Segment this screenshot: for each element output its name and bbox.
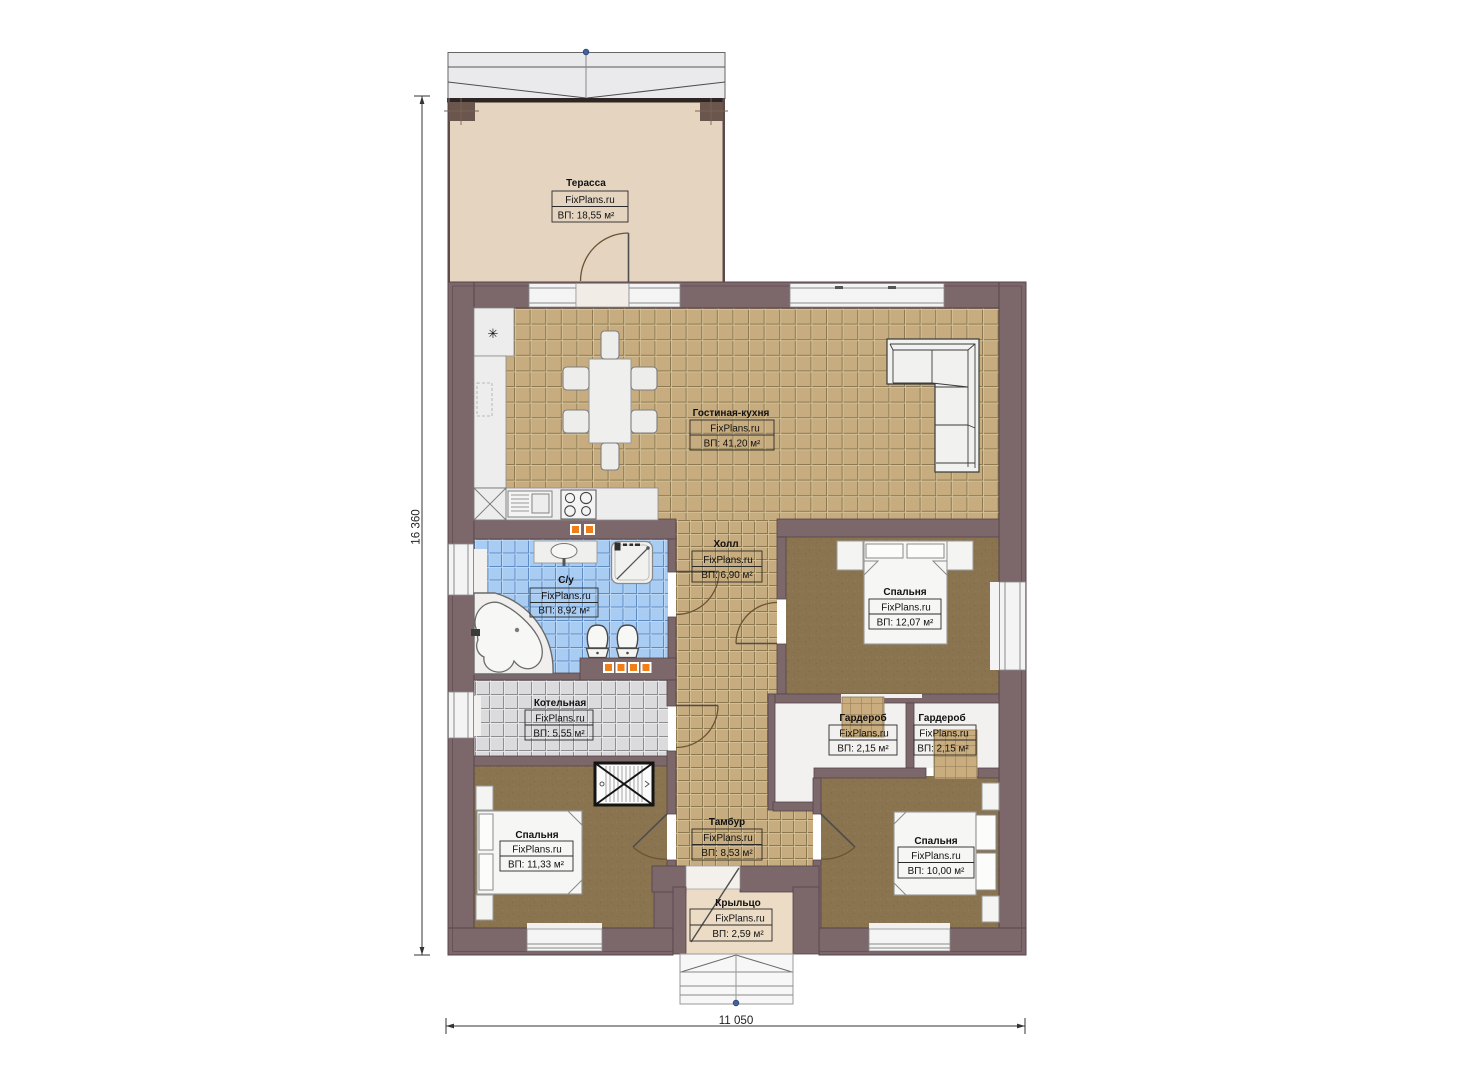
svg-text:16 360: 16 360	[410, 509, 423, 544]
svg-text:ВП: 6,90 м²: ВП: 6,90 м²	[701, 570, 753, 581]
svg-text:Гостиная-кухня: Гостиная-кухня	[693, 408, 770, 419]
svg-text:FixPlans.ru: FixPlans.ru	[703, 555, 752, 566]
svg-text:✳: ✳	[488, 326, 499, 341]
svg-text:FixPlans.ru: FixPlans.ru	[541, 591, 590, 602]
svg-text:Гардероб: Гардероб	[839, 712, 886, 724]
svg-text:Спальня: Спальня	[883, 587, 926, 598]
svg-text:ВП: 2,15 м²: ВП: 2,15 м²	[917, 744, 969, 755]
svg-text:FixPlans.ru: FixPlans.ru	[535, 714, 584, 725]
svg-text:ВП: 12,07 м²: ВП: 12,07 м²	[877, 618, 934, 629]
svg-text:FixPlans.ru: FixPlans.ru	[715, 914, 764, 925]
svg-text:FixPlans.ru: FixPlans.ru	[565, 195, 614, 206]
svg-text:Спальня: Спальня	[914, 836, 957, 847]
svg-text:ВП: 41,20 м²: ВП: 41,20 м²	[704, 439, 761, 450]
svg-text:Котельная: Котельная	[534, 698, 587, 709]
svg-text:FixPlans.ru: FixPlans.ru	[919, 729, 968, 740]
svg-text:ВП: 10,00 м²: ВП: 10,00 м²	[908, 866, 965, 877]
svg-text:Терасса: Терасса	[566, 178, 606, 189]
svg-text:Тамбур: Тамбур	[709, 816, 745, 828]
svg-text:FixPlans.ru: FixPlans.ru	[881, 603, 930, 614]
svg-text:ВП: 11,33 м²: ВП: 11,33 м²	[508, 860, 565, 871]
svg-text:FixPlans.ru: FixPlans.ru	[911, 851, 960, 862]
svg-text:Холл: Холл	[713, 539, 738, 550]
svg-text:ВП: 8,53 м²: ВП: 8,53 м²	[701, 848, 753, 859]
svg-text:FixPlans.ru: FixPlans.ru	[703, 833, 752, 844]
svg-text:Гардероб: Гардероб	[918, 712, 965, 724]
svg-text:Спальня: Спальня	[515, 830, 558, 841]
svg-text:FixPlans.ru: FixPlans.ru	[710, 424, 759, 435]
svg-text:ВП: 18,55 м²: ВП: 18,55 м²	[558, 211, 615, 222]
svg-text:ВП: 8,92 м²: ВП: 8,92 м²	[538, 606, 590, 617]
svg-text:FixPlans.ru: FixPlans.ru	[512, 845, 561, 856]
svg-text:ВП: 2,15 м²: ВП: 2,15 м²	[837, 744, 889, 755]
svg-text:ВП: 5,55 м²: ВП: 5,55 м²	[533, 729, 585, 740]
svg-text:FixPlans.ru: FixPlans.ru	[839, 729, 888, 740]
svg-text:С/у: С/у	[558, 575, 574, 586]
svg-text:11 050: 11 050	[719, 1014, 754, 1027]
svg-text:ВП: 2,59 м²: ВП: 2,59 м²	[712, 929, 764, 940]
svg-text:Крыльцо: Крыльцо	[715, 898, 761, 909]
